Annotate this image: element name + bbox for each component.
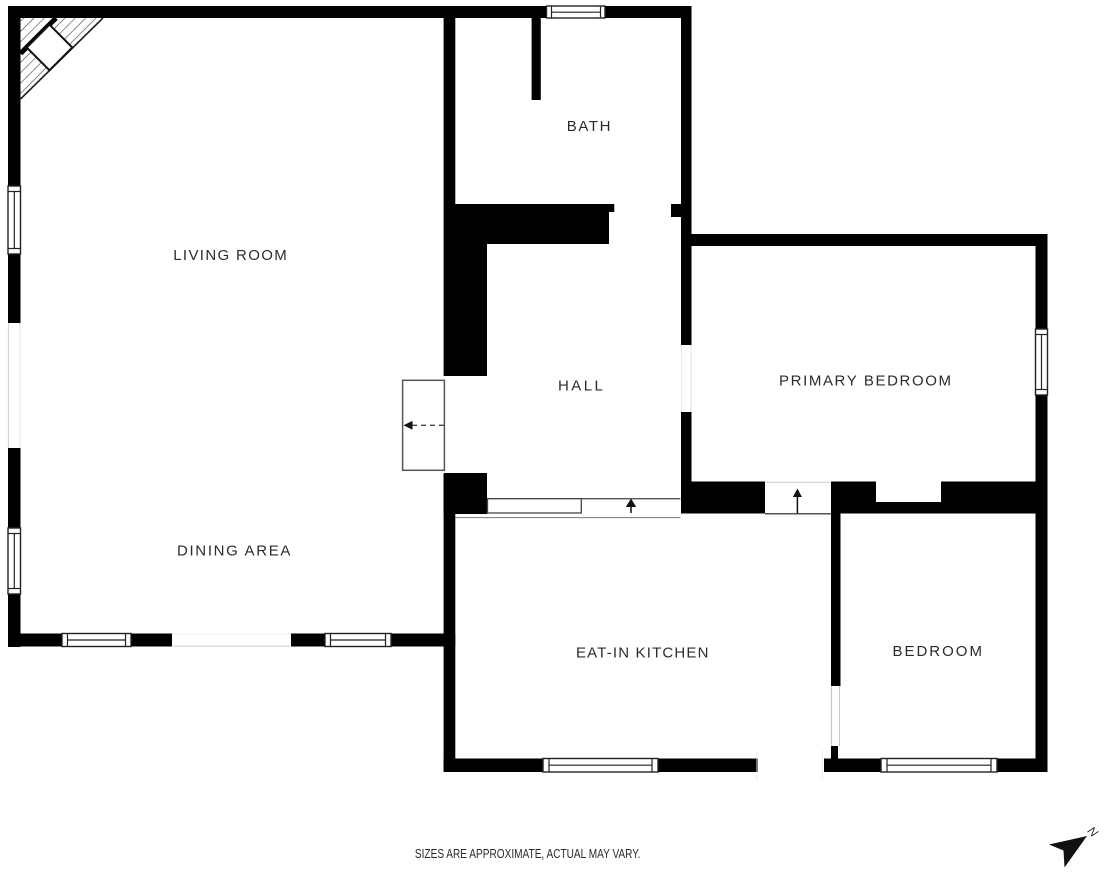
svg-text:LIVING ROOM: LIVING ROOM: [173, 247, 287, 264]
svg-text:PRIMARY BEDROOM: PRIMARY BEDROOM: [779, 372, 951, 389]
svg-text:HALL: HALL: [558, 378, 603, 395]
svg-text:BATH: BATH: [567, 118, 611, 135]
svg-text:DINING AREA: DINING AREA: [177, 543, 291, 560]
svg-text:BEDROOM: BEDROOM: [892, 643, 982, 660]
svg-text:EAT-IN KITCHEN: EAT-IN KITCHEN: [576, 645, 709, 662]
svg-text:SIZES ARE APPROXIMATE, ACTUAL: SIZES ARE APPROXIMATE, ACTUAL MAY VARY.: [415, 847, 641, 861]
svg-text:N: N: [1085, 824, 1101, 840]
